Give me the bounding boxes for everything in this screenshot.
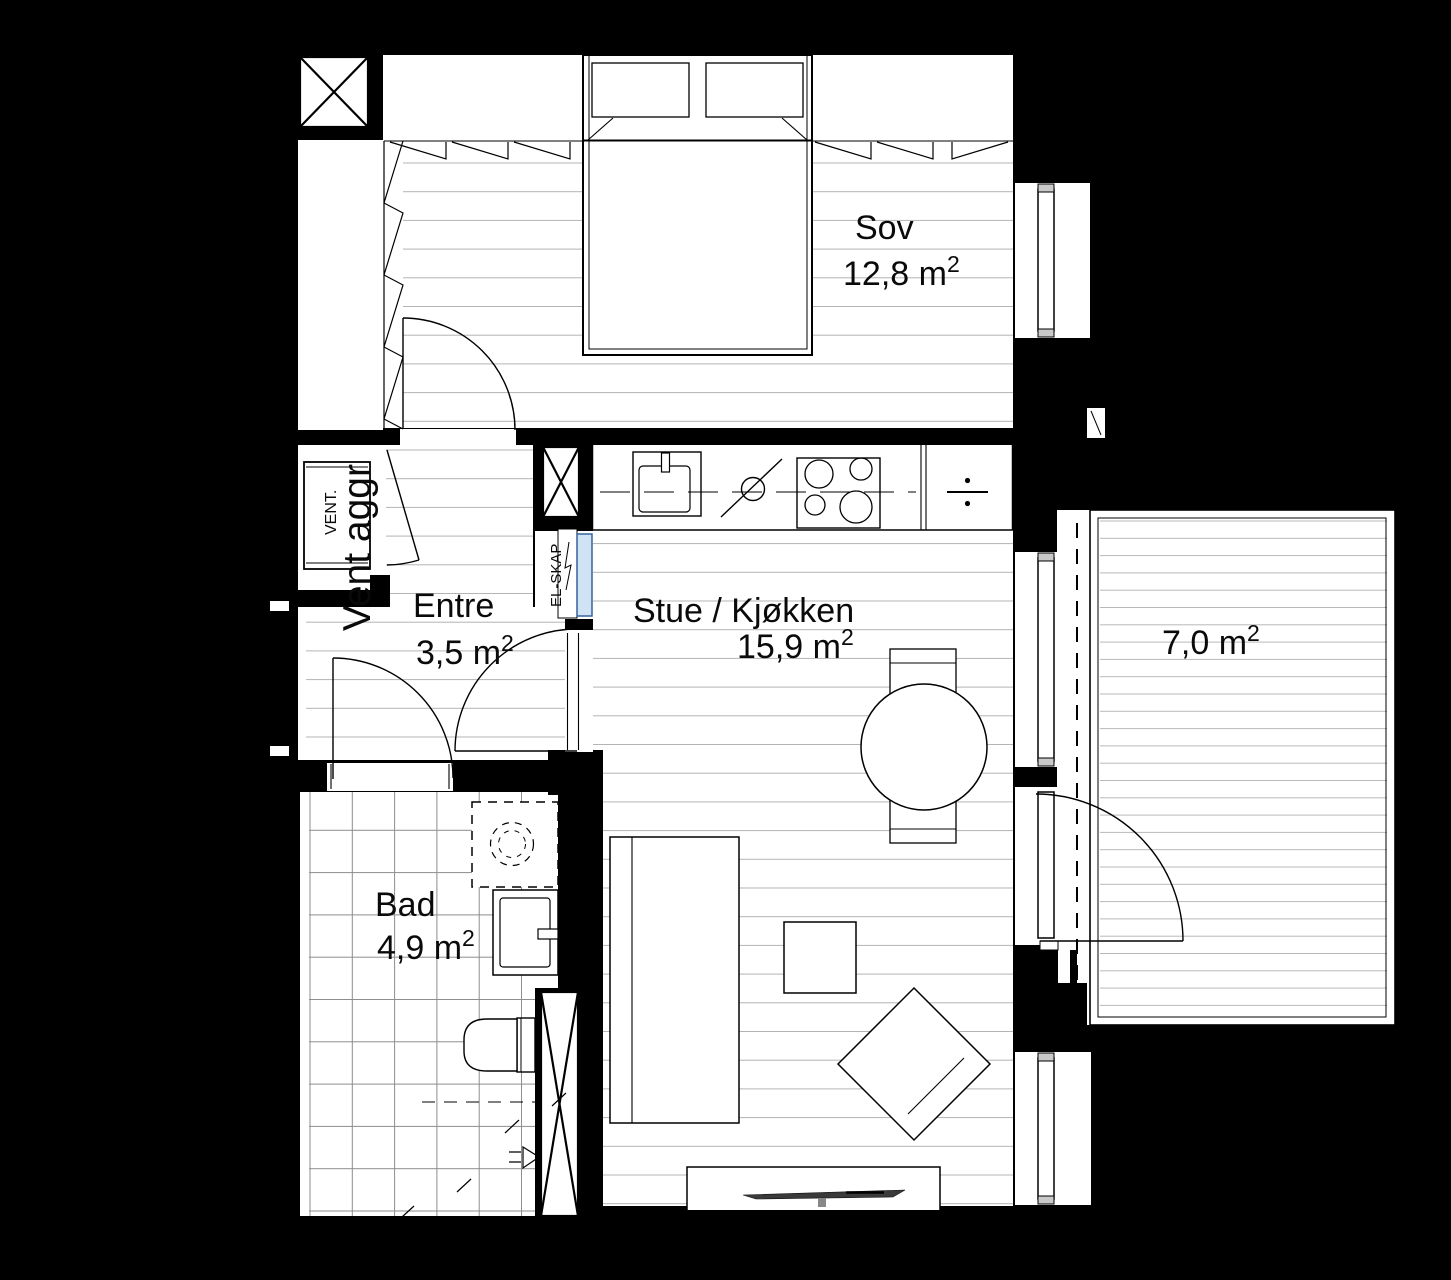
room-area-balkong: 7,0 m2 (1162, 620, 1260, 662)
pillow-left (592, 63, 689, 117)
pillow-right (706, 63, 803, 117)
window-glass-stue-upper (1038, 558, 1054, 761)
floor-plan: Sov 12,8 m2 Stue / Kjøkken 15,9 m2 Entre… (0, 0, 1451, 1280)
room-area-entre: 3,5 m2 (416, 630, 514, 672)
sov-closet-floor (298, 140, 384, 430)
washing-machine-outline (472, 802, 558, 887)
vent-label-big: Vent aggr (336, 464, 379, 631)
room-label-stue-kjokken: Stue / Kjøkken (633, 592, 854, 630)
floor-hatching (298, 141, 1387, 1218)
window-glass-stue-lower (1038, 1058, 1054, 1199)
wall-tick-upper (270, 601, 289, 611)
room-area-sov: 12,8 m2 (843, 251, 960, 293)
shaft-icon-kitchen (543, 447, 579, 517)
el-skap-label: EL-SKAP (548, 544, 565, 607)
el-skap-blue-panel (577, 534, 592, 616)
room-label-entre: Entre (413, 587, 494, 625)
sofa (610, 837, 739, 1123)
room-area-stue-kjokken: 15,9 m2 (737, 624, 854, 666)
coffee-table (784, 922, 856, 993)
bed (583, 55, 812, 355)
window-glass-sov (1038, 189, 1054, 331)
floor-plan-drawing: Sov 12,8 m2 Stue / Kjøkken 15,9 m2 Entre… (0, 0, 1451, 1280)
balcony-threshold (1040, 941, 1058, 950)
bathroom-sink (493, 890, 558, 975)
shaft-icon-top-left (300, 57, 368, 127)
doorway-bad (327, 763, 453, 791)
room-label-sov: Sov (855, 209, 914, 247)
toilet (464, 1018, 535, 1072)
balcony-door-glass (1038, 792, 1054, 938)
tv-stand (818, 1198, 826, 1207)
dining-table (861, 684, 987, 810)
wall-tick-lower (270, 746, 289, 756)
shaft-icon-bath (541, 992, 578, 1216)
doorway-sov (400, 429, 516, 445)
room-label-bad: Bad (375, 886, 436, 924)
room-area-bad: 4,9 m2 (377, 925, 475, 967)
tv-bench (687, 1167, 940, 1210)
